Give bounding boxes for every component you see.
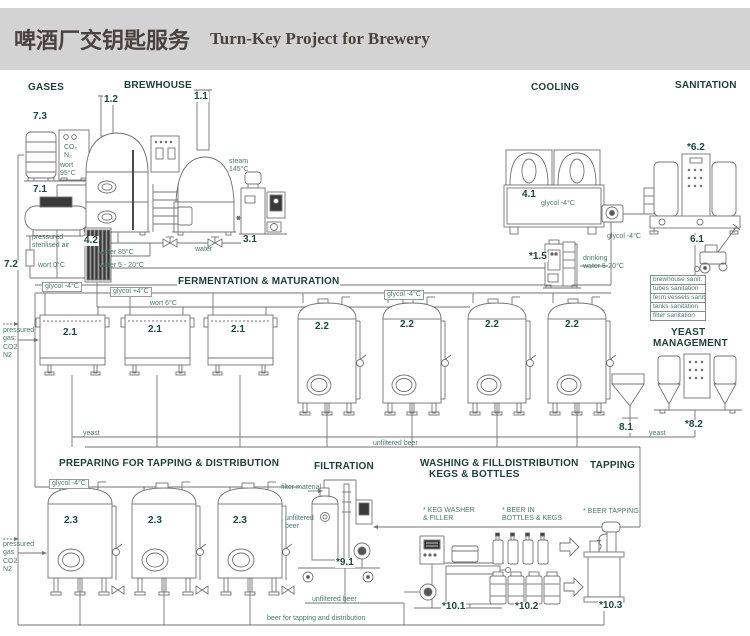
pipe-unfiltered-beer-c: unfiltered beer [312, 596, 357, 604]
pipe-water-85: water 85°C [99, 249, 134, 257]
num-7-1: 7.1 [32, 185, 48, 195]
title-band: 啤酒厂交钥匙服务 Turn-Key Project for Brewery [0, 8, 750, 70]
pipe-glycol-minus4-c: glycol -4°C [607, 233, 641, 241]
gas-panel-co2-n2: CO₂ N₂ [64, 144, 77, 161]
section-washing-line2: KEGS & BOTTLES [428, 469, 521, 480]
num-2-3-c: 2.3 [232, 516, 248, 526]
brewhouse-control-panel [151, 136, 179, 172]
cip-station-6-2 [644, 154, 740, 234]
maturation-tank-2-2 [548, 297, 616, 415]
num-2-3-a: 2.3 [63, 516, 79, 526]
yeast-collector-8-1 [612, 374, 644, 418]
num-4-1: 4.1 [521, 190, 537, 200]
num-6-2: *6.2 [686, 143, 706, 153]
pipe-water: water [195, 246, 212, 254]
gas-supply-top: pressured gas: CO2 N2 [3, 327, 34, 360]
num-2-1-c: 2.1 [230, 325, 246, 335]
num-8-2: *8.2 [684, 420, 704, 430]
mobile-cip-cart-6-1 [695, 224, 741, 273]
bright-beer-tank-2-3 [132, 482, 208, 595]
section-sanitation: SANITATION [674, 80, 738, 91]
pipe-unfiltered-beer-a: unfiltered beer [373, 440, 418, 448]
beer-tapping-label: * BEER TAPPING [583, 508, 639, 516]
pipe-yeast-left: yeast [83, 430, 100, 438]
filter-material-label: filter material [281, 484, 321, 492]
num-7-3: 7.3 [32, 112, 48, 122]
maturation-tank-2-2 [298, 297, 366, 415]
page-title-english: Turn-Key Project for Brewery [210, 29, 430, 49]
num-9-1: *9.1 [335, 558, 355, 568]
num-2-2-c: 2.2 [484, 320, 500, 330]
page-title-chinese: 啤酒厂交钥匙服务 [14, 23, 190, 55]
brewery-diagram-page: 啤酒厂交钥匙服务 Turn-Key Project for Brewery GA… [0, 0, 750, 636]
section-cooling: COOLING [530, 82, 580, 93]
brew-vessel-1-2 [84, 96, 150, 235]
num-2-2-a: 2.2 [314, 322, 330, 332]
pipe-wort-95: wort 95°C [60, 162, 76, 179]
pipe-unfiltered-beer-b: unfiltered beer [285, 515, 314, 532]
gas-tank-7-3 [24, 130, 91, 181]
num-10-1: *10.1 [441, 602, 466, 612]
section-yeast-line1: YEAST [670, 327, 706, 338]
pipe-sterilised-air: pressured sterilised air [32, 234, 69, 251]
num-2-2-b: 2.2 [399, 320, 415, 330]
pipe-yeast-right: yeast [649, 430, 666, 438]
num-2-3-b: 2.3 [147, 516, 163, 526]
num-1-1: 1.1 [193, 92, 209, 102]
bright-beer-tank-2-3 [48, 482, 124, 595]
section-yeast-line2: MANAGEMENT [652, 338, 729, 349]
air-compressor-7-1 [25, 197, 90, 236]
num-6-1: 6.1 [689, 235, 705, 245]
brew-vessel-1-1 [172, 90, 236, 235]
gas-supply-bottom: pressured gas CO2 N2 [3, 541, 34, 574]
bright-beer-tank-2-3 [218, 482, 294, 595]
num-2-2-d: 2.2 [564, 320, 580, 330]
chiller-glycol-label: glycol -4°C [541, 200, 575, 208]
maturation-tank-2-2 [383, 297, 451, 415]
water-treatment-1-5 [543, 240, 581, 288]
keg-washer-label: * KEG WASHER & FILLER [423, 507, 475, 524]
beer-tapping-10-3 [584, 522, 624, 602]
section-fermentation: FERMENTATION & MATURATION [177, 276, 340, 287]
num-2-1-a: 2.1 [62, 328, 78, 338]
section-tapping: TAPPING [589, 460, 636, 471]
pipe-wort-0: wort 0°C [38, 262, 65, 270]
section-distribution: DISTRIBUTION [504, 458, 580, 469]
pipe-glycol-minus4-a: glycol -4°C [42, 282, 82, 292]
pipe-water-5-20: water 5 - 20°C [99, 262, 144, 270]
steam-generator-3-1 [236, 172, 287, 234]
num-8-1: 8.1 [618, 423, 634, 433]
pipe-wort-6: wort 6°C [150, 300, 177, 308]
pipe-steam-145: steam 145°C [229, 158, 249, 175]
pipe-glycol-minus4-b: glycol -4°C [384, 290, 424, 300]
section-preparing: PREPARING FOR TAPPING & DISTRIBUTION [58, 458, 280, 469]
pipe-glycol-minus4-d: glycol -4°C [49, 479, 89, 489]
num-10-2: *10.2 [514, 602, 539, 612]
pipe-glycol-plus4: glycol +4°C [110, 287, 152, 297]
open-fermenter-2-1 [36, 315, 109, 375]
distribution-arrow-icon [560, 538, 579, 556]
num-2-1-b: 2.1 [147, 325, 163, 335]
section-brewhouse: BREWHOUSE [123, 80, 193, 91]
num-7-2: 7.2 [3, 260, 19, 270]
distribution-arrow-icon [564, 578, 583, 596]
section-filtration: FILTRATION [313, 461, 375, 472]
section-gases: GASES [27, 82, 65, 93]
valve-icon [163, 237, 177, 247]
beer-bottles [493, 533, 548, 564]
beer-kegs [490, 572, 560, 604]
san-row-filter: filter sanitation [650, 311, 706, 321]
num-4-2: 4.2 [83, 236, 99, 246]
yeast-management-8-2 [654, 354, 742, 413]
pipe-beer-tapping-dist: beer for tapping and distribution [267, 615, 365, 623]
pipe-drinking-water: drinking water 5-20°C [583, 255, 624, 272]
beer-in-bottles-label: * BEER IN BOTTLES & KEGS [502, 507, 562, 524]
maturation-tank-2-2 [468, 297, 536, 415]
num-1-2: 1.2 [103, 95, 119, 105]
num-1-5: *1.5 [528, 252, 548, 262]
num-3-1: 3.1 [242, 235, 258, 245]
num-10-3: *10.3 [598, 601, 623, 611]
